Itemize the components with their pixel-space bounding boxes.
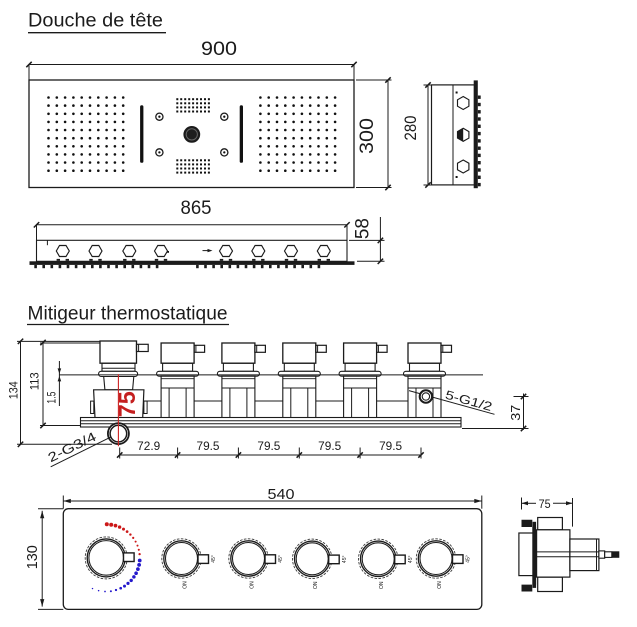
svg-text:ON: ON — [313, 581, 319, 589]
svg-text:79.5: 79.5 — [379, 441, 402, 453]
svg-text:134: 134 — [9, 381, 21, 400]
svg-text:ON: ON — [379, 581, 385, 589]
svg-text:79.5: 79.5 — [197, 441, 220, 453]
svg-text:900: 900 — [201, 38, 237, 60]
svg-text:5-G1/2: 5-G1/2 — [444, 388, 494, 414]
svg-text:130: 130 — [24, 545, 41, 569]
svg-text:ON: ON — [182, 581, 188, 589]
svg-text:ON: ON — [437, 581, 443, 589]
svg-text:45°: 45° — [278, 555, 284, 563]
svg-text:75: 75 — [114, 391, 140, 417]
svg-text:113: 113 — [30, 372, 42, 390]
svg-text:45°: 45° — [211, 555, 217, 563]
svg-text:72.9: 72.9 — [137, 441, 160, 453]
svg-text:540: 540 — [268, 487, 295, 503]
svg-text:ON: ON — [249, 581, 255, 589]
svg-text:280: 280 — [402, 116, 420, 141]
svg-text:37: 37 — [508, 405, 523, 421]
svg-text:75: 75 — [539, 499, 551, 511]
svg-text:Mitigeur thermostatique: Mitigeur thermostatique — [28, 304, 228, 325]
svg-text:45°: 45° — [408, 556, 414, 564]
svg-text:45°: 45° — [466, 555, 472, 563]
svg-text:79.5: 79.5 — [257, 441, 280, 453]
svg-text:45°: 45° — [342, 556, 348, 564]
svg-text:79.5: 79.5 — [318, 441, 341, 453]
svg-text:1.5: 1.5 — [47, 392, 59, 404]
svg-text:58: 58 — [352, 218, 373, 239]
svg-text:865: 865 — [181, 197, 212, 219]
svg-text:Douche de tête: Douche de tête — [28, 10, 163, 32]
svg-text:300: 300 — [357, 118, 378, 154]
